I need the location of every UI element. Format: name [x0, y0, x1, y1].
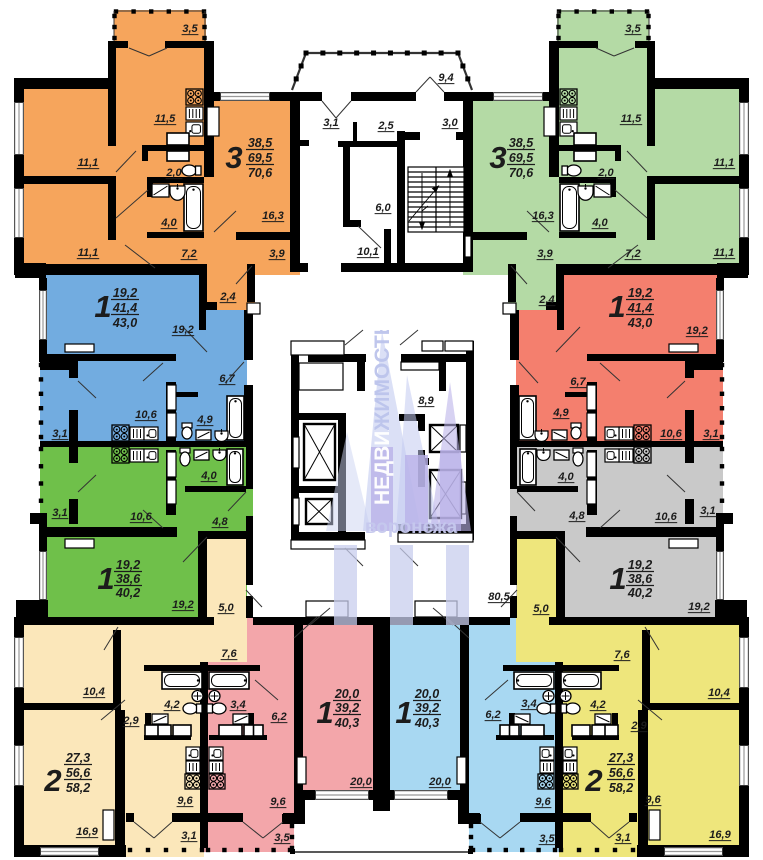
svg-text:1: 1: [97, 561, 114, 596]
svg-text:воронежа: воронежа: [365, 517, 458, 538]
svg-text:2,9: 2,9: [630, 720, 647, 732]
svg-text:38,5: 38,5: [509, 136, 534, 150]
svg-text:6,0: 6,0: [375, 202, 391, 214]
svg-text:20,0: 20,0: [414, 687, 439, 701]
svg-text:41,4: 41,4: [112, 301, 137, 315]
svg-text:1: 1: [316, 695, 333, 730]
svg-text:11,1: 11,1: [78, 247, 99, 259]
svg-text:3,0: 3,0: [442, 117, 458, 129]
svg-text:9,6: 9,6: [270, 796, 286, 808]
svg-text:40,3: 40,3: [334, 716, 359, 730]
svg-text:10,6: 10,6: [660, 428, 682, 440]
svg-text:4,9: 4,9: [196, 414, 213, 426]
svg-text:9,6: 9,6: [535, 796, 551, 808]
svg-text:27,3: 27,3: [65, 751, 90, 765]
svg-text:10,6: 10,6: [130, 511, 152, 523]
svg-text:11,5: 11,5: [155, 113, 176, 125]
svg-text:3: 3: [225, 140, 242, 175]
svg-text:11,5: 11,5: [621, 113, 642, 125]
svg-text:3,4: 3,4: [230, 699, 245, 711]
svg-text:19,2: 19,2: [686, 325, 707, 337]
svg-text:3,5: 3,5: [182, 23, 198, 35]
svg-text:3,1: 3,1: [52, 428, 67, 440]
svg-text:19,2: 19,2: [116, 558, 140, 572]
svg-text:8,9: 8,9: [418, 395, 434, 407]
svg-text:1: 1: [608, 289, 625, 324]
svg-text:11,1: 11,1: [714, 247, 735, 259]
svg-text:41,4: 41,4: [627, 301, 652, 315]
svg-text:70,6: 70,6: [248, 166, 273, 180]
svg-text:6,2: 6,2: [485, 709, 500, 721]
svg-text:56,6: 56,6: [609, 766, 634, 780]
svg-text:2,0: 2,0: [597, 167, 614, 179]
svg-text:3,1: 3,1: [700, 505, 715, 517]
svg-text:2,4: 2,4: [219, 291, 235, 303]
svg-text:1: 1: [609, 561, 626, 596]
svg-text:10,4: 10,4: [708, 687, 729, 699]
svg-text:9,6: 9,6: [645, 794, 661, 806]
svg-text:80,5: 80,5: [488, 591, 510, 603]
svg-text:3,5: 3,5: [274, 832, 290, 844]
svg-text:1: 1: [395, 695, 412, 730]
svg-text:3,5: 3,5: [625, 23, 641, 35]
svg-text:19,2: 19,2: [113, 286, 137, 300]
svg-text:39,2: 39,2: [335, 701, 359, 715]
svg-text:16,3: 16,3: [262, 210, 283, 222]
svg-text:2,9: 2,9: [122, 715, 139, 727]
svg-text:38,6: 38,6: [628, 572, 653, 586]
svg-text:9,6: 9,6: [177, 795, 193, 807]
svg-text:19,2: 19,2: [172, 324, 193, 336]
svg-text:2,4: 2,4: [538, 294, 554, 306]
svg-text:3,1: 3,1: [615, 832, 630, 844]
svg-text:7,2: 7,2: [181, 248, 196, 260]
svg-text:3,4: 3,4: [521, 698, 536, 710]
svg-text:9,4: 9,4: [438, 72, 453, 84]
svg-text:20,0: 20,0: [428, 776, 451, 788]
svg-text:6,7: 6,7: [570, 376, 586, 388]
svg-text:10,4: 10,4: [83, 686, 104, 698]
svg-text:43,0: 43,0: [112, 316, 137, 330]
svg-text:10,1: 10,1: [357, 246, 378, 258]
svg-text:3,1: 3,1: [52, 507, 67, 519]
svg-text:4,0: 4,0: [200, 470, 217, 482]
svg-text:20,0: 20,0: [349, 776, 372, 788]
svg-text:4,8: 4,8: [211, 516, 228, 528]
svg-text:10,6: 10,6: [655, 511, 677, 523]
svg-text:70,6: 70,6: [509, 166, 534, 180]
svg-text:4,9: 4,9: [552, 407, 569, 419]
svg-text:3,9: 3,9: [269, 248, 285, 260]
svg-text:5,0: 5,0: [218, 602, 234, 614]
svg-text:3: 3: [489, 140, 506, 175]
svg-text:16,9: 16,9: [709, 829, 731, 841]
svg-text:69,5: 69,5: [509, 151, 534, 165]
svg-text:11,1: 11,1: [714, 157, 735, 169]
svg-text:38,5: 38,5: [248, 136, 273, 150]
svg-text:69,5: 69,5: [248, 151, 273, 165]
svg-text:4,0: 4,0: [160, 217, 177, 229]
svg-text:3,9: 3,9: [537, 248, 553, 260]
svg-text:4,2: 4,2: [163, 699, 179, 711]
svg-text:43,0: 43,0: [627, 316, 652, 330]
svg-text:40,2: 40,2: [627, 586, 652, 600]
svg-text:6,7: 6,7: [219, 373, 235, 385]
svg-text:16,3: 16,3: [532, 210, 553, 222]
svg-text:3,1: 3,1: [323, 117, 338, 129]
svg-text:39,2: 39,2: [415, 701, 439, 715]
svg-text:4,8: 4,8: [568, 510, 585, 522]
svg-text:40,2: 40,2: [115, 586, 140, 600]
svg-text:3,1: 3,1: [181, 830, 196, 842]
svg-text:56,6: 56,6: [66, 766, 91, 780]
svg-text:2: 2: [43, 763, 61, 798]
svg-text:5,0: 5,0: [533, 603, 549, 615]
svg-text:10,6: 10,6: [135, 409, 157, 421]
svg-text:2,5: 2,5: [377, 120, 394, 132]
svg-text:19,2: 19,2: [172, 599, 193, 611]
svg-text:19,2: 19,2: [688, 601, 709, 613]
svg-text:19,2: 19,2: [628, 558, 652, 572]
svg-text:4,0: 4,0: [591, 217, 608, 229]
svg-text:7,2: 7,2: [625, 248, 640, 260]
svg-text:38,6: 38,6: [116, 572, 141, 586]
svg-text:58,2: 58,2: [66, 781, 90, 795]
svg-text:16,9: 16,9: [76, 826, 98, 838]
svg-text:2,0: 2,0: [165, 167, 182, 179]
svg-text:58,2: 58,2: [609, 781, 633, 795]
svg-text:7,6: 7,6: [614, 649, 630, 661]
svg-text:3,5: 3,5: [539, 833, 555, 845]
svg-text:7,6: 7,6: [221, 648, 237, 660]
svg-text:3,1: 3,1: [703, 428, 718, 440]
svg-text:4,2: 4,2: [589, 699, 605, 711]
svg-text:19,2: 19,2: [628, 286, 652, 300]
svg-text:11,1: 11,1: [78, 157, 99, 169]
svg-text:40,3: 40,3: [414, 716, 439, 730]
svg-text:4,0: 4,0: [557, 471, 574, 483]
svg-text:1: 1: [94, 289, 111, 324]
svg-text:20,0: 20,0: [334, 687, 359, 701]
svg-text:27,3: 27,3: [608, 751, 633, 765]
svg-text:2: 2: [584, 763, 602, 798]
svg-text:6,2: 6,2: [271, 711, 286, 723]
